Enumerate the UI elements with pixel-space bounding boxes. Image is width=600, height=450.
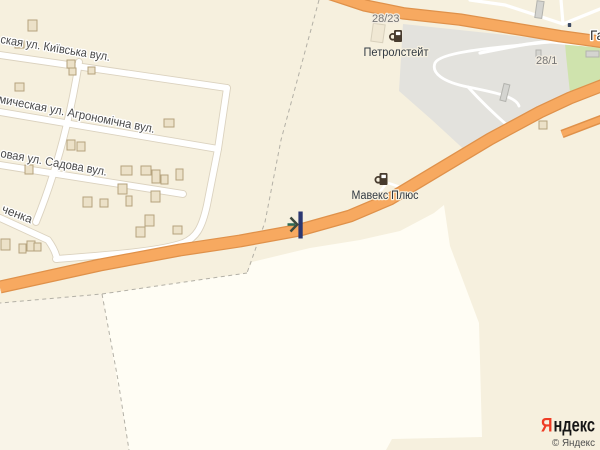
svg-text:ндекс: ндекс	[554, 415, 596, 437]
svg-text:Га: Га	[590, 28, 600, 43]
svg-text:28/23: 28/23	[372, 13, 400, 25]
svg-text:28/1: 28/1	[536, 55, 557, 67]
svg-text:Петролстейт: Петролстейт	[364, 47, 430, 59]
svg-text:Мавекс Плюс: Мавекс Плюс	[352, 190, 419, 202]
svg-text:© Яндекс: © Яндекс	[552, 437, 595, 449]
svg-text:Я: Я	[541, 415, 553, 437]
